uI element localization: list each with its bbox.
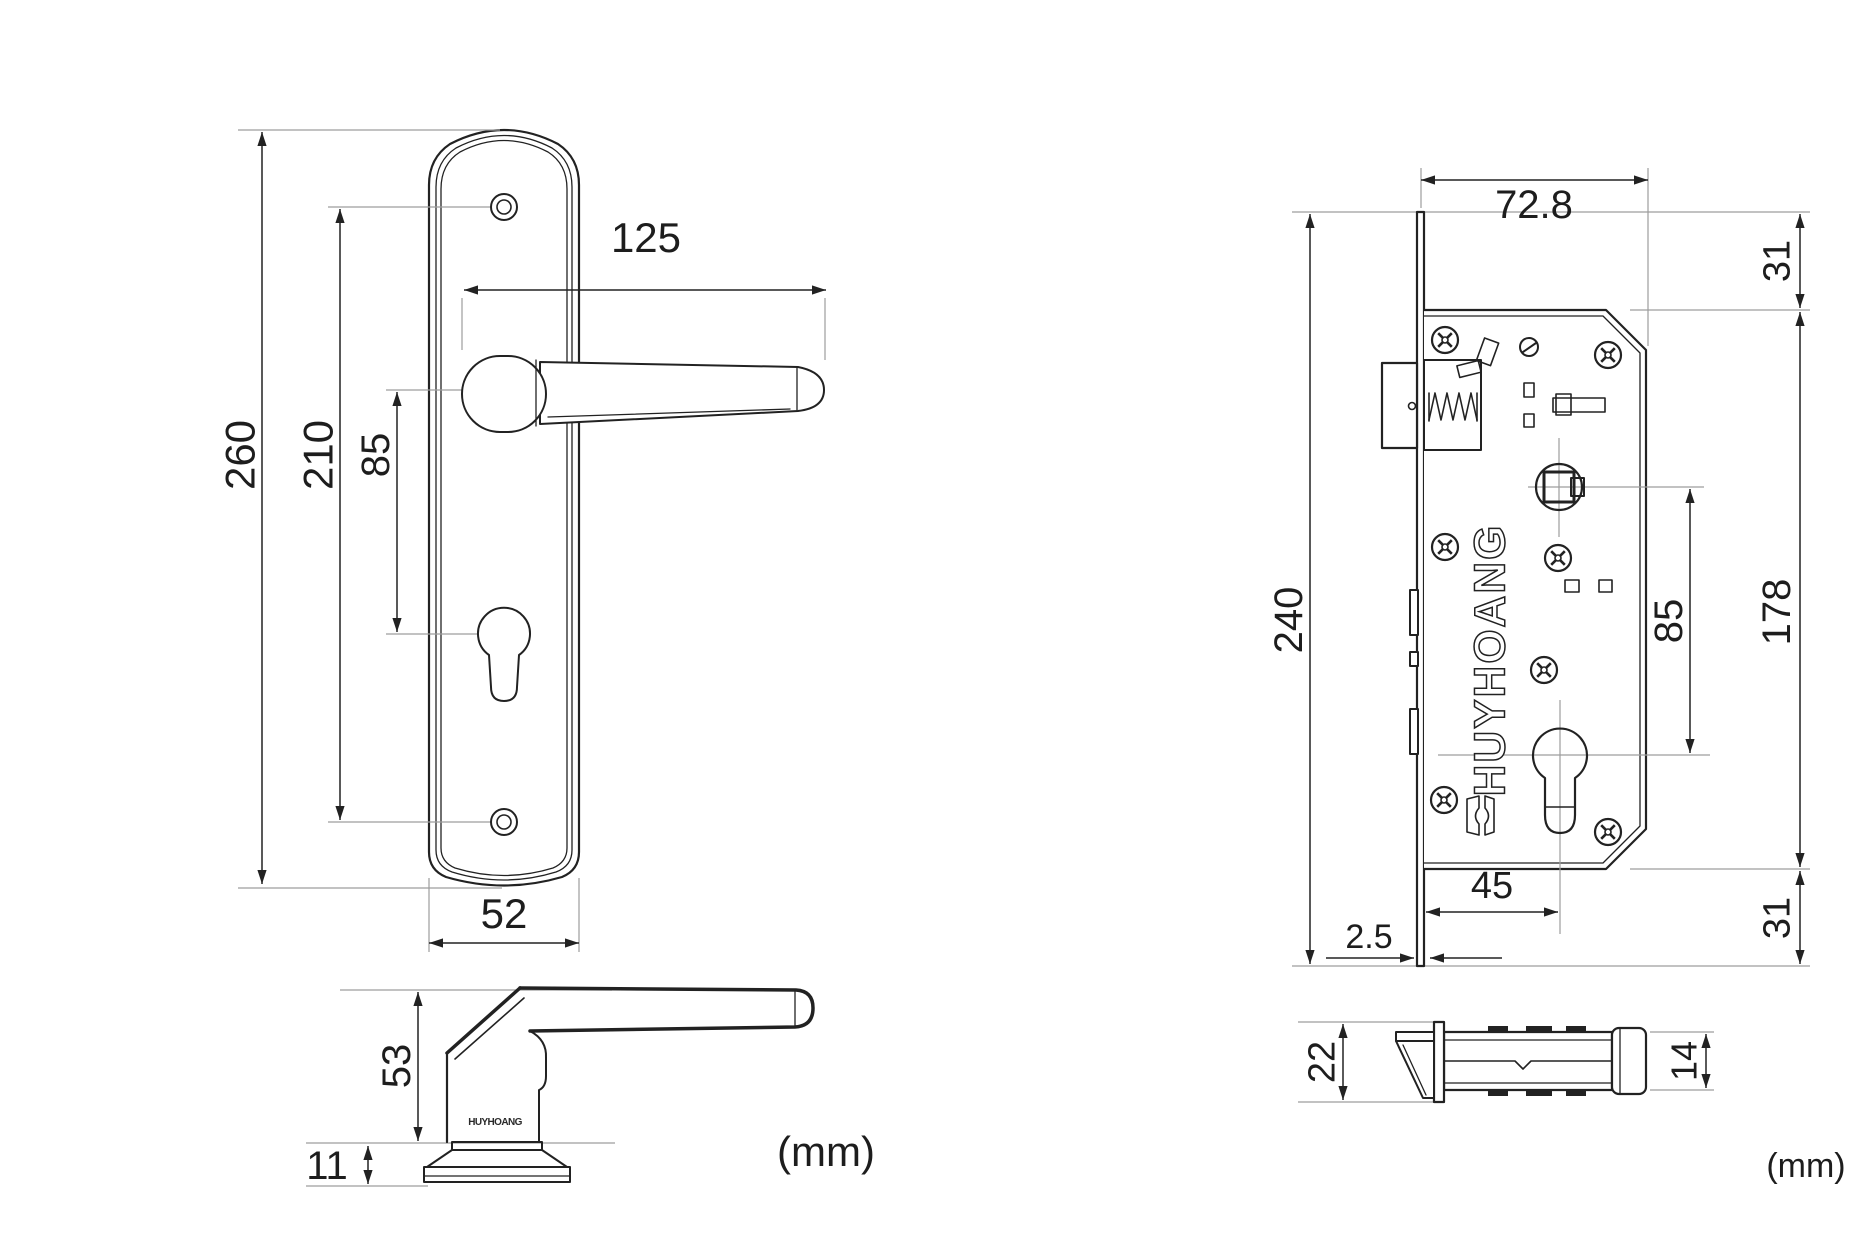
bottom-screw-hole: [491, 809, 517, 835]
technical-drawing-page: 260 210 85 125 52: [0, 0, 1875, 1250]
dim-728-label: 72.8: [1495, 183, 1573, 227]
dim-25-label: 2.5: [1345, 918, 1392, 956]
dim-260-label: 260: [217, 420, 264, 490]
latch-bolt: [1382, 363, 1417, 448]
brand-engraving: HUYHOANG: [468, 1117, 522, 1128]
dim-210-label: 210: [295, 420, 342, 490]
lock-side-endcap: [1612, 1028, 1646, 1094]
dim-45-label: 45: [1471, 865, 1513, 907]
unit-label-right: (mm): [1766, 1147, 1845, 1185]
dim-31-bottom-label: 31: [1756, 897, 1798, 939]
lock-side-faceplate: [1434, 1022, 1444, 1102]
dim-14-label: 14: [1664, 1041, 1705, 1081]
dim-240-label: 240: [1267, 587, 1311, 654]
dim-85-handle-label: 85: [354, 433, 398, 478]
dim-53-label: 53: [375, 1044, 419, 1089]
unit-label-left: (mm): [777, 1128, 875, 1175]
dim-11-label: 11: [306, 1144, 348, 1188]
dim-178-label: 178: [1755, 579, 1799, 646]
lock-side-body: [1396, 1022, 1646, 1102]
dim-85-lock-label: 85: [1647, 599, 1691, 644]
dim-52-label: 52: [481, 890, 528, 937]
handle-backplate: [429, 130, 579, 886]
dim-22-label: 22: [1301, 1041, 1343, 1083]
dim-125-label: 125: [611, 214, 681, 261]
lock-faceplate: [1417, 212, 1424, 966]
dim-31-top-label: 31: [1756, 240, 1798, 282]
top-screw-hole: [491, 194, 517, 220]
brand-text: HUYHOANG: [1465, 524, 1514, 797]
